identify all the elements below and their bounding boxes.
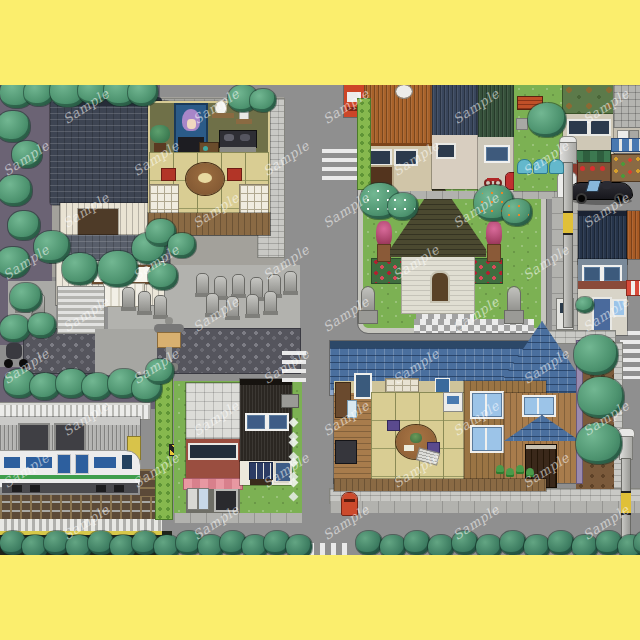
- planter-pot: [488, 245, 500, 261]
- shop-window-band: [190, 445, 236, 458]
- bonsai: [150, 125, 170, 143]
- tree: [500, 531, 526, 555]
- tree: [428, 535, 454, 555]
- green-roof: [478, 85, 518, 137]
- appliance: [444, 393, 462, 411]
- train: [0, 451, 142, 497]
- house-window: [470, 391, 504, 419]
- bench-blue: [517, 159, 532, 174]
- noren-curtain: [250, 463, 272, 479]
- table-papers: [404, 445, 414, 451]
- low-table: [186, 163, 224, 195]
- scooter-wheel: [4, 359, 13, 368]
- tree: [380, 535, 406, 555]
- window: [368, 149, 392, 166]
- tree: [98, 251, 138, 287]
- tree: [576, 423, 622, 464]
- tree: [578, 377, 624, 418]
- car-wheel: [614, 193, 625, 204]
- utility-box: [282, 395, 298, 407]
- tree: [452, 531, 478, 555]
- roof-ridge: [330, 341, 546, 348]
- bench-blue: [549, 159, 564, 174]
- tv-set: [336, 441, 356, 463]
- train-stripe: [0, 475, 140, 479]
- shoji-screen: [240, 185, 268, 215]
- trim-band: [578, 281, 627, 289]
- tree: [548, 531, 574, 555]
- bottom-border-mat: [0, 555, 640, 640]
- grave-statue: [154, 295, 167, 317]
- grave-statue: [246, 294, 259, 316]
- grave-statue: [232, 274, 245, 296]
- convertible-car: [570, 179, 634, 207]
- red-lantern: [600, 166, 605, 171]
- wall-poster: [436, 379, 449, 394]
- grave-statue: [206, 293, 219, 315]
- pot: [240, 134, 250, 141]
- house-window: [522, 395, 556, 417]
- train-window: [4, 457, 20, 468]
- tree: [10, 283, 42, 312]
- bicycle-frame: [487, 178, 499, 181]
- garden-statue: [362, 287, 374, 313]
- statue-pedestal: [505, 311, 523, 323]
- window: [484, 145, 510, 163]
- shop-awning-pink: [184, 479, 242, 489]
- maneki-neko: [216, 101, 226, 113]
- grave-statue: [226, 296, 239, 318]
- train-bogie: [12, 485, 22, 492]
- tree: [148, 263, 178, 290]
- postbox-slot: [344, 499, 355, 502]
- tree: [524, 535, 550, 555]
- grass-tuft: [516, 465, 524, 474]
- pot: [224, 134, 234, 141]
- lantern-light: [158, 333, 180, 347]
- train-bogie: [30, 485, 40, 492]
- mossy-roof: [563, 85, 614, 113]
- machiya-door: [250, 479, 272, 485]
- tree: [572, 535, 598, 555]
- interior-door: [356, 375, 370, 397]
- machiya-side-window: [276, 463, 290, 481]
- train-bogie: [96, 485, 106, 492]
- red-lantern: [580, 166, 585, 171]
- tree: [404, 531, 430, 555]
- car-seats: [602, 181, 612, 189]
- top-border-mat: [0, 0, 640, 85]
- shop-awning-green: [576, 151, 610, 163]
- vending-machine: [199, 489, 208, 509]
- tree: [0, 247, 30, 278]
- building-rust-roof: [627, 211, 640, 259]
- house-window: [470, 425, 504, 453]
- train-window: [94, 457, 116, 468]
- satellite-dish-icon: [396, 85, 412, 98]
- tree: [0, 175, 32, 206]
- train-body: [0, 451, 140, 487]
- park-tile: [517, 119, 527, 129]
- wall-shelf: [236, 119, 252, 124]
- tree: [0, 315, 30, 342]
- tree: [62, 253, 98, 285]
- teacup: [203, 146, 208, 151]
- tree: [168, 233, 196, 258]
- train-door: [76, 455, 88, 473]
- rose-planter: [486, 221, 502, 247]
- tree: [356, 531, 382, 555]
- shop-door-glass: [216, 491, 236, 510]
- pole-shaft: [564, 163, 572, 327]
- closet-shelf: [386, 379, 418, 392]
- kitchen-stove: [220, 131, 256, 147]
- garden-statue: [508, 287, 520, 313]
- tiled-roof: [614, 85, 640, 127]
- train-cab-window: [122, 455, 132, 469]
- temple-stairs: [58, 287, 104, 333]
- lantern-cap: [154, 324, 184, 333]
- machiya-window: [267, 413, 289, 431]
- grave-statue: [284, 271, 297, 293]
- grave-statue: [122, 287, 135, 309]
- shop-awning-blue: [612, 139, 640, 151]
- red-lantern: [590, 166, 595, 171]
- floor-cushion: [162, 169, 175, 180]
- statue-pedestal: [359, 311, 377, 323]
- postbox: [342, 493, 357, 515]
- floor-cushion-purple: [388, 421, 399, 430]
- navy-roof: [432, 85, 478, 135]
- pole-transformer: [560, 143, 576, 163]
- tree: [502, 199, 532, 226]
- train-bogie: [114, 485, 124, 492]
- plate: [198, 173, 212, 183]
- scooter-wheel: [19, 359, 28, 368]
- engawa-porch: [334, 479, 546, 491]
- scooter-body: [6, 343, 22, 359]
- window: [567, 119, 589, 136]
- house-blue-door: [594, 299, 610, 333]
- window: [436, 143, 456, 159]
- grass-tuft: [496, 465, 504, 474]
- striped-awning: [627, 281, 640, 295]
- tree: [12, 141, 42, 168]
- produce-stand: [612, 155, 640, 181]
- tree: [146, 359, 174, 384]
- hedge: [358, 99, 370, 189]
- crosswalk: [282, 351, 306, 385]
- window-small: [614, 301, 624, 315]
- pole-band-yellow: [621, 491, 631, 515]
- grass-tuft: [526, 468, 534, 477]
- church-door: [430, 271, 450, 303]
- tree: [250, 89, 276, 112]
- screenshot-root: { "canvas": {"width":640,"height":640,"b…: [0, 0, 640, 640]
- tree: [574, 335, 618, 375]
- crosswalk: [620, 331, 640, 379]
- town-map: 庵日寿: [0, 85, 640, 555]
- window: [589, 119, 611, 136]
- tree: [8, 211, 40, 240]
- window: [394, 149, 418, 166]
- tree: [286, 535, 312, 555]
- crosswalk: [322, 149, 358, 185]
- pole-band-yellow: [563, 211, 573, 235]
- wall-shelf: [212, 113, 234, 118]
- floor-cushion: [228, 169, 241, 180]
- bench-blue: [533, 159, 548, 174]
- grave-statue: [196, 273, 209, 295]
- sidewalk: [174, 513, 302, 523]
- portrait-face: [187, 119, 196, 129]
- grave-statue: [264, 291, 277, 313]
- appliance-screen: [447, 396, 459, 404]
- tree: [388, 193, 418, 220]
- tree: [476, 535, 502, 555]
- shop-roof-panels: [186, 383, 240, 439]
- train-window: [26, 457, 52, 468]
- tree: [28, 313, 56, 338]
- machiya-window: [245, 413, 267, 431]
- temple-hall-door: [78, 209, 118, 235]
- vending-machine: [188, 489, 197, 509]
- station-roof-edge: [0, 417, 140, 425]
- building-navy-roof: [578, 211, 627, 264]
- water-jug: [348, 401, 356, 417]
- tree: [576, 297, 594, 313]
- grave-statue: [138, 291, 151, 313]
- train-door: [58, 455, 70, 473]
- sidewalk: [330, 501, 640, 513]
- tree: [528, 103, 566, 137]
- planter-pot: [378, 245, 390, 261]
- railway-tracks: [0, 495, 164, 519]
- grass-tuft: [506, 468, 514, 477]
- shoji-screen: [150, 185, 178, 215]
- rose-planter: [376, 221, 392, 247]
- table-bonsai: [410, 433, 422, 443]
- tree: [0, 111, 30, 142]
